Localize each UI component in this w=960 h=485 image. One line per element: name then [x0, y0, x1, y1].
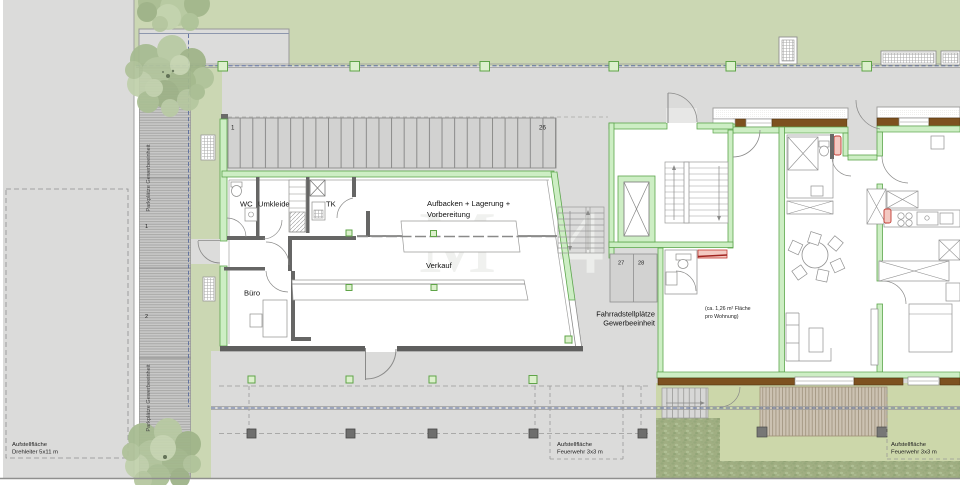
svg-text:Feuerwehr 3x3 m: Feuerwehr 3x3 m	[891, 450, 937, 456]
svg-text:Feuerwehr 3x3 m: Feuerwehr 3x3 m	[557, 450, 603, 456]
svg-text:Parkplätze Gewerbeeinheit: Parkplätze Gewerbeeinheit	[146, 144, 152, 212]
svg-text:1: 1	[231, 125, 235, 132]
svg-text:28: 28	[638, 261, 644, 267]
svg-text:Vorbereitung: Vorbereitung	[427, 210, 470, 219]
svg-text:Aufstellfläche: Aufstellfläche	[12, 442, 48, 448]
svg-text:Umkleide: Umkleide	[258, 200, 290, 209]
svg-text:1: 1	[145, 224, 148, 230]
svg-text:Aufstellfläche: Aufstellfläche	[891, 442, 927, 448]
svg-text:Verkauf: Verkauf	[426, 261, 453, 270]
svg-text:Fahrradstellplätze: Fahrradstellplätze	[596, 310, 655, 319]
svg-text:Aufbacken + Lagerung +: Aufbacken + Lagerung +	[427, 199, 511, 208]
svg-text:Büro: Büro	[244, 289, 260, 298]
svg-text:Aufstellfläche: Aufstellfläche	[557, 442, 593, 448]
svg-text:2: 2	[145, 314, 148, 320]
svg-text:Parkplätze Gewerbeeinheit: Parkplätze Gewerbeeinheit	[146, 364, 152, 432]
svg-text:(ca. 1,26 m² Fläche: (ca. 1,26 m² Fläche	[705, 306, 751, 312]
svg-text:26: 26	[539, 125, 546, 132]
svg-text:Drehleiter 5x11 m: Drehleiter 5x11 m	[12, 450, 58, 456]
svg-text:pro Wohnung): pro Wohnung)	[705, 314, 739, 320]
svg-text:Gewerbeeinheit: Gewerbeeinheit	[603, 319, 655, 328]
svg-text:TK: TK	[326, 200, 336, 209]
svg-text:27: 27	[618, 261, 624, 267]
svg-text:WC: WC	[240, 200, 253, 209]
